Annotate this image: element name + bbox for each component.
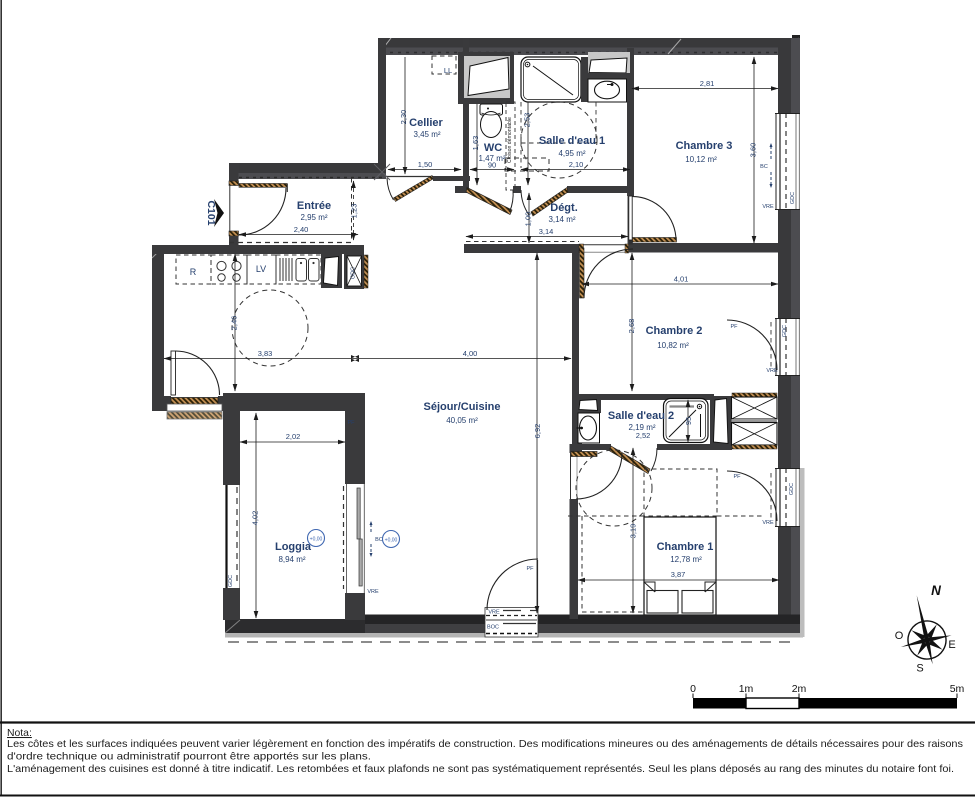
svg-text:6,92: 6,92 (533, 424, 542, 439)
svg-text:Chambre 3: Chambre 3 (676, 140, 733, 152)
svg-text:3,87: 3,87 (671, 570, 686, 579)
svg-text:1,23: 1,23 (350, 204, 359, 219)
svg-text:Chambre 2: Chambre 2 (646, 325, 703, 337)
svg-text:95: 95 (684, 417, 693, 425)
svg-text:VRE: VRE (762, 520, 774, 526)
svg-text:2,40: 2,40 (294, 225, 309, 234)
svg-text:12,78 m²: 12,78 m² (670, 555, 702, 564)
svg-text:2,53: 2,53 (523, 113, 532, 128)
svg-text:L'aménagement des cuisines est: L'aménagement des cuisines est donné à t… (7, 764, 954, 775)
svg-text:10,12 m²: 10,12 m² (685, 155, 717, 164)
svg-text:VRE: VRE (762, 204, 774, 210)
svg-text:5m: 5m (950, 683, 965, 695)
svg-text:Dégt.: Dégt. (550, 202, 578, 214)
svg-text:GDC: GDC (790, 192, 796, 204)
svg-text:Les côtes et les surfaces indi: Les côtes et les surfaces indiquées peuv… (7, 739, 963, 750)
svg-text:3,19: 3,19 (629, 524, 638, 539)
svg-text:4,01: 4,01 (674, 275, 689, 284)
svg-text:4,00: 4,00 (463, 349, 478, 358)
svg-text:Nota:: Nota: (7, 728, 32, 739)
svg-text:+0,00: +0,00 (310, 537, 323, 543)
svg-text:40,05 m²: 40,05 m² (446, 416, 478, 425)
svg-text:1,00: 1,00 (524, 212, 533, 227)
svg-text:1,50: 1,50 (418, 160, 433, 169)
svg-text:Cellier: Cellier (409, 117, 443, 129)
svg-text:2,46: 2,46 (230, 316, 239, 331)
svg-text:GDC: GDC (228, 575, 234, 587)
svg-text:Loggia: Loggia (275, 541, 312, 553)
svg-text:C101: C101 (205, 200, 217, 225)
svg-text:VRE: VRE (488, 610, 500, 616)
svg-text:S: S (916, 663, 923, 675)
svg-text:2,52: 2,52 (636, 431, 651, 440)
svg-text:2,02: 2,02 (286, 432, 301, 441)
svg-text:LV: LV (256, 264, 266, 274)
svg-text:3,83: 3,83 (258, 349, 273, 358)
svg-text:Entrée: Entrée (297, 200, 331, 212)
svg-text:N: N (931, 583, 941, 598)
svg-text:4,02: 4,02 (251, 511, 260, 526)
svg-text:GDC: GDC (351, 267, 357, 279)
svg-text:O: O (895, 630, 904, 642)
svg-text:BOC: BOC (487, 625, 499, 631)
svg-text:2,10: 2,10 (569, 160, 584, 169)
svg-text:+0,00: +0,00 (385, 538, 398, 544)
svg-text:PF: PF (733, 474, 741, 480)
svg-text:GDC: GDC (782, 325, 788, 337)
svg-text:3,45 m²: 3,45 m² (413, 130, 440, 139)
svg-text:Cloison démontable: Cloison démontable (507, 117, 513, 163)
svg-text:2,95 m²: 2,95 m² (300, 213, 327, 222)
svg-text:VRE: VRE (367, 589, 379, 595)
svg-text:3,60: 3,60 (749, 143, 758, 158)
svg-text:0: 0 (690, 683, 696, 695)
svg-text:2m: 2m (792, 683, 807, 695)
svg-text:BC: BC (375, 537, 383, 543)
svg-text:BC: BC (760, 164, 768, 170)
svg-text:Séjour/Cuisine: Séjour/Cuisine (423, 401, 500, 413)
svg-text:LL: LL (444, 66, 452, 75)
svg-text:d'ordre technique ou administr: d'ordre technique ou administratif pourr… (7, 752, 371, 763)
svg-text:R: R (190, 267, 197, 277)
svg-text:PF: PF (347, 420, 355, 426)
svg-text:2,81: 2,81 (700, 79, 715, 88)
svg-text:Salle d'eau 1: Salle d'eau 1 (539, 135, 605, 147)
svg-text:2,30: 2,30 (399, 110, 408, 125)
svg-text:3,14 m²: 3,14 m² (548, 215, 575, 224)
svg-text:8,94 m²: 8,94 m² (278, 555, 305, 564)
svg-text:10,82 m²: 10,82 m² (657, 341, 689, 350)
svg-text:WC: WC (484, 142, 502, 154)
svg-text:PF: PF (526, 566, 534, 572)
svg-text:VRE: VRE (766, 368, 778, 374)
svg-text:GDC: GDC (789, 483, 795, 495)
svg-text:2,68: 2,68 (627, 319, 636, 334)
svg-text:3,14: 3,14 (539, 227, 554, 236)
svg-text:PF: PF (730, 324, 738, 330)
svg-text:1m: 1m (739, 683, 754, 695)
svg-text:4,95 m²: 4,95 m² (558, 149, 585, 158)
svg-text:Salle d'eau 2: Salle d'eau 2 (608, 410, 674, 422)
svg-text:1,63: 1,63 (471, 136, 480, 151)
svg-text:Chambre 1: Chambre 1 (657, 541, 714, 553)
svg-text:E: E (948, 639, 955, 651)
svg-text:1,47 m²: 1,47 m² (478, 154, 505, 163)
